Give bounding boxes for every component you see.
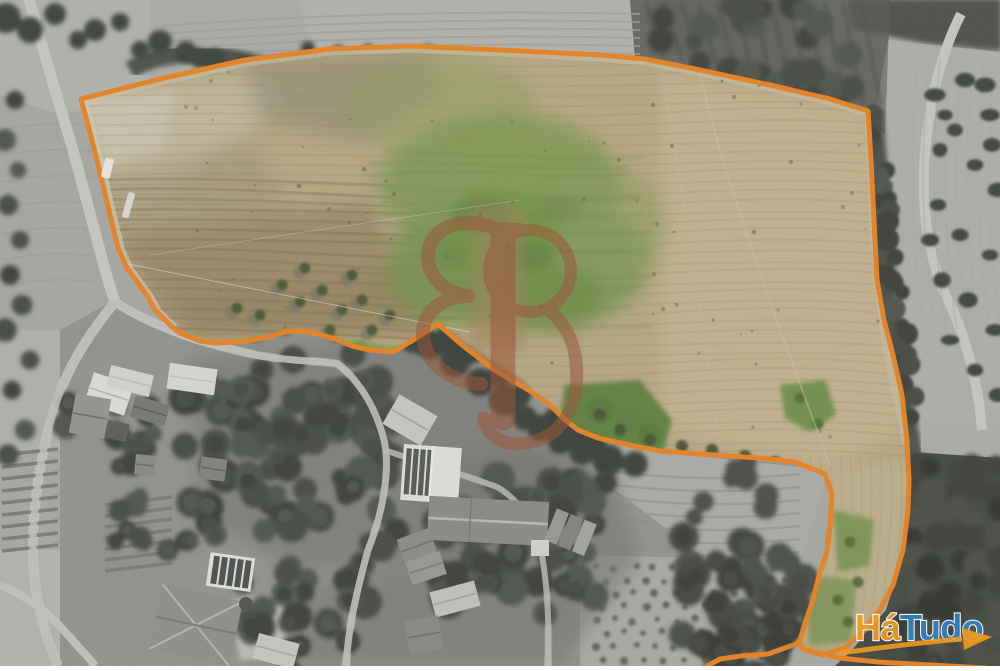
svg-text:Há: Há <box>855 607 901 648</box>
